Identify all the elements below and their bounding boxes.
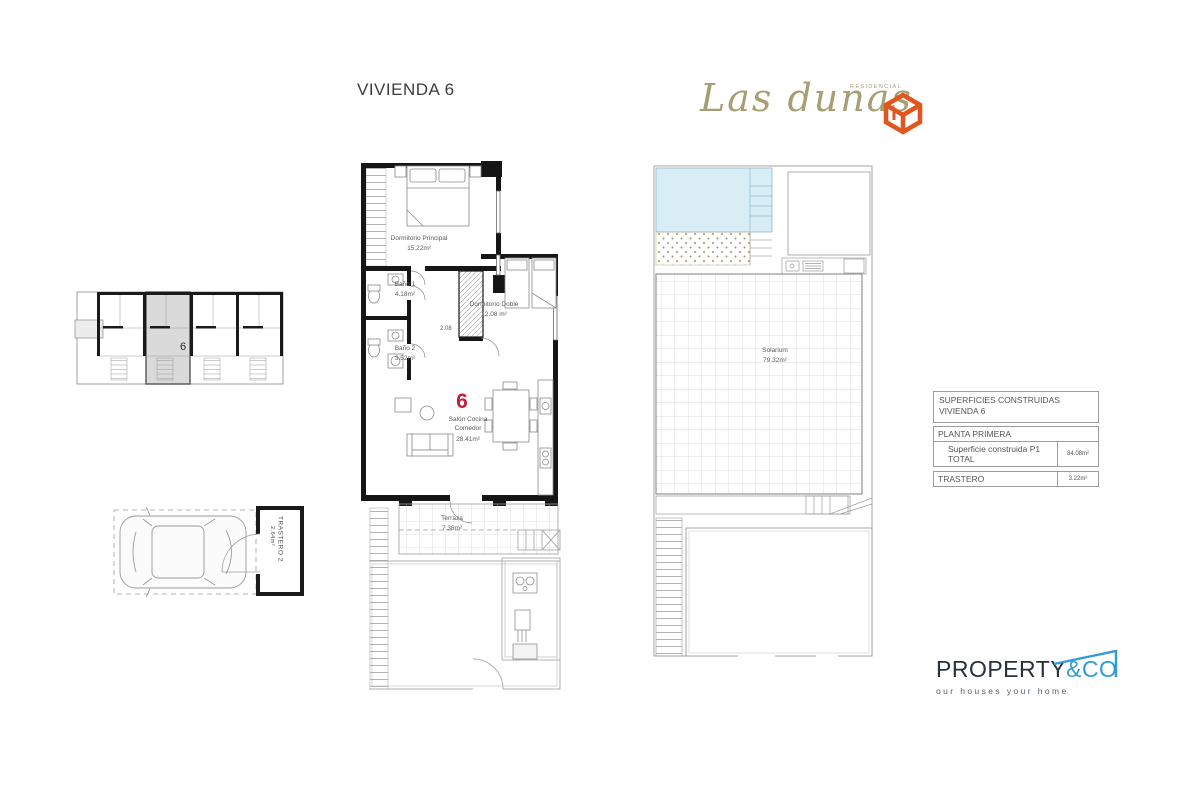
keyplan-unit-number: 6 (180, 341, 186, 353)
room-label-bano2: Baño 2 3.52m² (385, 344, 425, 364)
footer-brand-name: PROPERTY&CO (936, 656, 1116, 683)
room-label-bano1: Baño 1 4.18m² (385, 280, 425, 300)
areas-table-title: SUPERFICIES CONSTRUIDAS VIVIENDA 6 (933, 391, 1099, 423)
brand-mark-icon (880, 90, 926, 136)
brochure-page: VIVIENDA 6 Las dunas RESIDENCIAL (0, 0, 1200, 800)
room-label-terraza: Terraza 7.38m² (420, 514, 484, 534)
storage-label: TRASTERO 2 2.64m² (268, 516, 284, 588)
areas-table-row: TRASTERO 3.22m² (933, 471, 1099, 487)
brand-block: Las dunas RESIDENCIAL (700, 70, 940, 148)
areas-table-section: PLANTA PRIMERA (933, 426, 1099, 442)
footer-brand: PROPERTY&CO our houses your home (936, 656, 1116, 696)
room-label-principal: Dormitorio Principal 15.22m² (383, 234, 455, 254)
roof-icon (1052, 647, 1122, 679)
solarium-label: Solarium 79.32m² (735, 346, 815, 366)
areas-table: SUPERFICIES CONSTRUIDAS VIVIENDA 6 PLANT… (933, 391, 1099, 487)
room-label-doble: Dormitorio Doble 12.08 m² (468, 300, 520, 320)
footer-tagline: our houses your home (936, 686, 1116, 696)
storage-area: 2.64m² (269, 526, 275, 546)
areas-table-row: Superficie construida P1 TOTAL 84.08m² (933, 441, 1099, 467)
dimension-label: 2.08 (440, 326, 452, 332)
page-title: VIVIENDA 6 (357, 80, 455, 100)
unit-number: 6 (447, 390, 477, 414)
room-label-salon: Salón Cocina Comedor 28.41m² (444, 415, 492, 444)
storage-name: TRASTERO 2 (277, 516, 284, 562)
solarium-plan (648, 160, 880, 665)
